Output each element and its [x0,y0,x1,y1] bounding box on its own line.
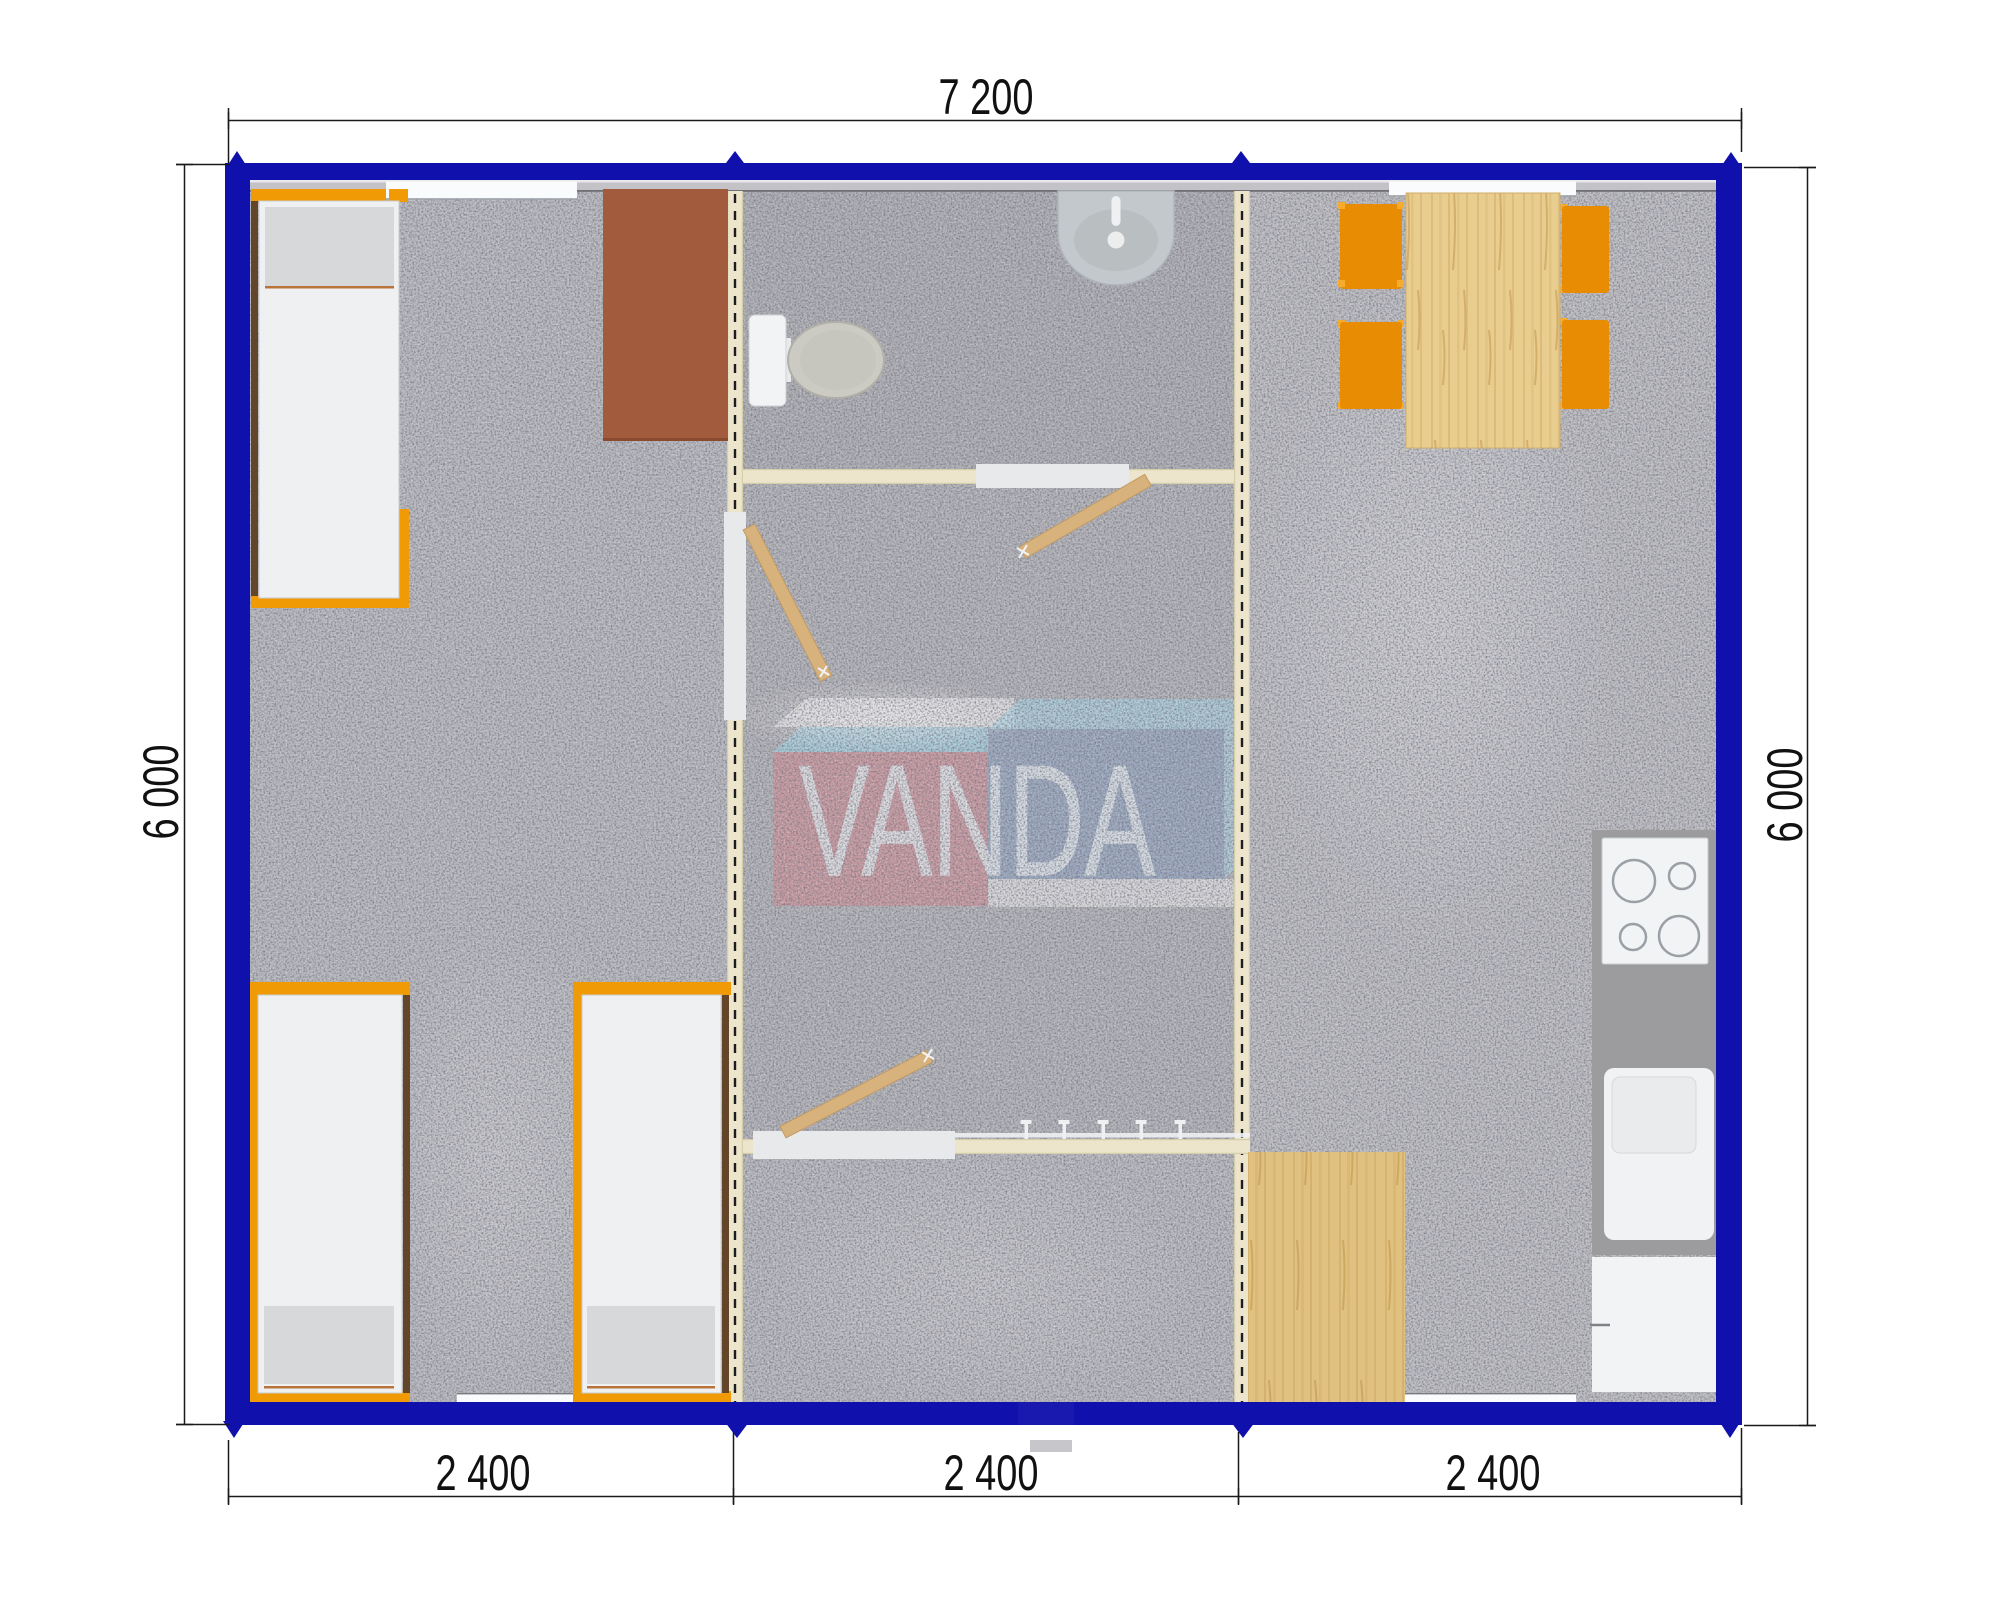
svg-text:6 000: 6 000 [1757,748,1813,843]
svg-text:2 400: 2 400 [1446,1445,1541,1501]
svg-text:6 000: 6 000 [133,745,189,840]
svg-text:7 200: 7 200 [939,69,1034,125]
svg-text:2 400: 2 400 [436,1445,531,1501]
svg-text:2 400: 2 400 [944,1445,1039,1501]
